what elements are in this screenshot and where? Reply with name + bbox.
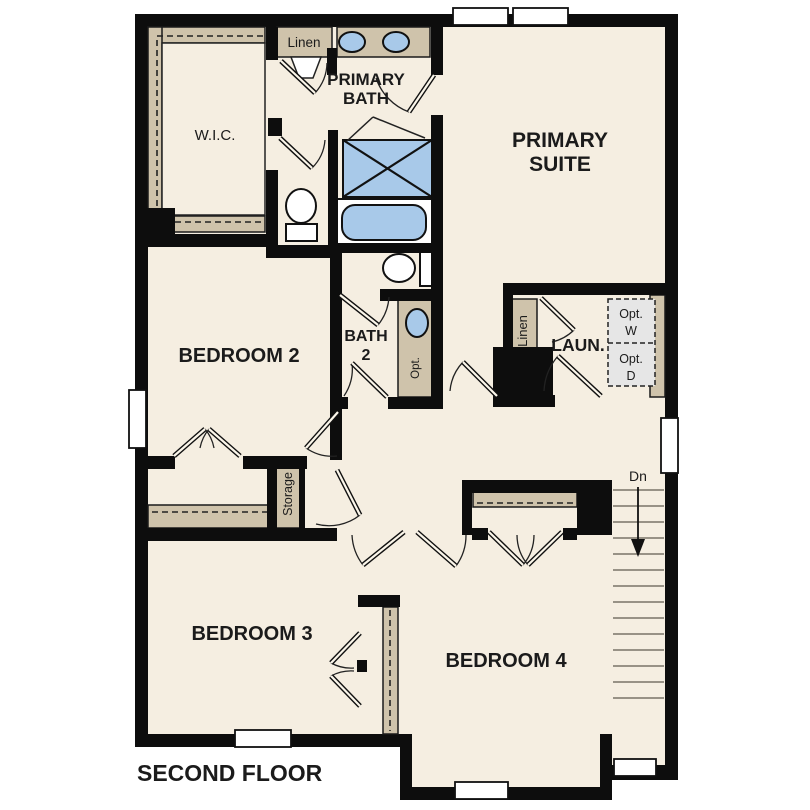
wall-segment: [268, 118, 282, 136]
bedroom2-label: BEDROOM 2: [178, 345, 299, 367]
wall-segment: [267, 469, 277, 528]
bedroom3-label: BEDROOM 3: [191, 623, 312, 645]
floor-plan-page: W.I.C. Linen PRIMARY BATH PRIMARY SUITE …: [0, 0, 810, 810]
bathtub: [342, 205, 426, 240]
wall-segment: [563, 528, 577, 540]
window: [129, 390, 146, 448]
wall-segment: [330, 245, 342, 460]
wall-segment: [148, 456, 175, 469]
optional-washer-label: W: [625, 324, 637, 338]
toilet-tank: [286, 224, 317, 241]
wall-segment: [472, 528, 488, 540]
wall-segment: [431, 27, 443, 75]
bedroom2-closet-shelf: [148, 505, 272, 528]
vanity-sink-left: [339, 32, 365, 52]
water-closet-toilet: [286, 189, 317, 241]
wall-segment: [358, 595, 400, 607]
stairs-down-label: Dn: [629, 468, 647, 484]
wall-segment: [493, 395, 555, 407]
toilet-bowl: [286, 189, 316, 223]
laundry-label: LAUN.: [551, 335, 604, 355]
wic-shelf-left: [148, 27, 162, 232]
wall-segment: [357, 660, 367, 672]
wall-segment: [330, 289, 340, 301]
primary-bath-label: BATH: [343, 89, 389, 108]
wall-segment: [328, 130, 338, 245]
bath2-label: 2: [362, 347, 371, 364]
storage-label: Storage: [281, 472, 295, 516]
wall-segment: [503, 295, 513, 347]
floor-title: SECOND FLOOR: [137, 760, 323, 786]
primary-suite-label: SUITE: [529, 153, 591, 176]
wic-label: W.I.C.: [195, 127, 236, 144]
wall-segment: [299, 460, 305, 528]
wall-segment: [431, 115, 443, 409]
bedroom4-label: BEDROOM 4: [445, 650, 567, 672]
primary-suite-label: PRIMARY: [512, 129, 608, 152]
optional-washer-label: Opt.: [619, 307, 643, 321]
window: [661, 418, 678, 473]
laundry-linen-label: Linen: [515, 315, 530, 347]
wall-segment: [266, 27, 278, 60]
wall-segment: [243, 456, 307, 469]
wall-segment: [135, 234, 278, 247]
wall-segment: [588, 480, 612, 535]
bath2-label: BATH: [344, 328, 387, 345]
wall-segment: [462, 480, 472, 535]
optional-sink-label: Opt.: [410, 357, 422, 379]
wall-segment: [330, 397, 348, 409]
window: [453, 8, 508, 25]
bath2-sink: [406, 309, 428, 337]
optional-dryer-label: D: [626, 369, 635, 383]
primary-bath-label: PRIMARY: [327, 70, 405, 89]
wall-segment: [266, 170, 278, 247]
window: [235, 730, 291, 747]
toilet-bowl: [383, 254, 415, 282]
window: [455, 782, 508, 799]
optional-dryer-label: Opt.: [619, 352, 643, 366]
wic-shelf-top: [148, 27, 265, 43]
wall-segment: [135, 528, 337, 541]
wall-segment: [330, 243, 443, 253]
linen-top-label: Linen: [287, 35, 320, 50]
floor-plan-drawing: W.I.C. Linen PRIMARY BATH PRIMARY SUITE …: [0, 0, 810, 810]
vanity-sink-right: [383, 32, 409, 52]
window: [513, 8, 568, 25]
wall-segment: [503, 283, 678, 295]
window: [614, 759, 656, 776]
